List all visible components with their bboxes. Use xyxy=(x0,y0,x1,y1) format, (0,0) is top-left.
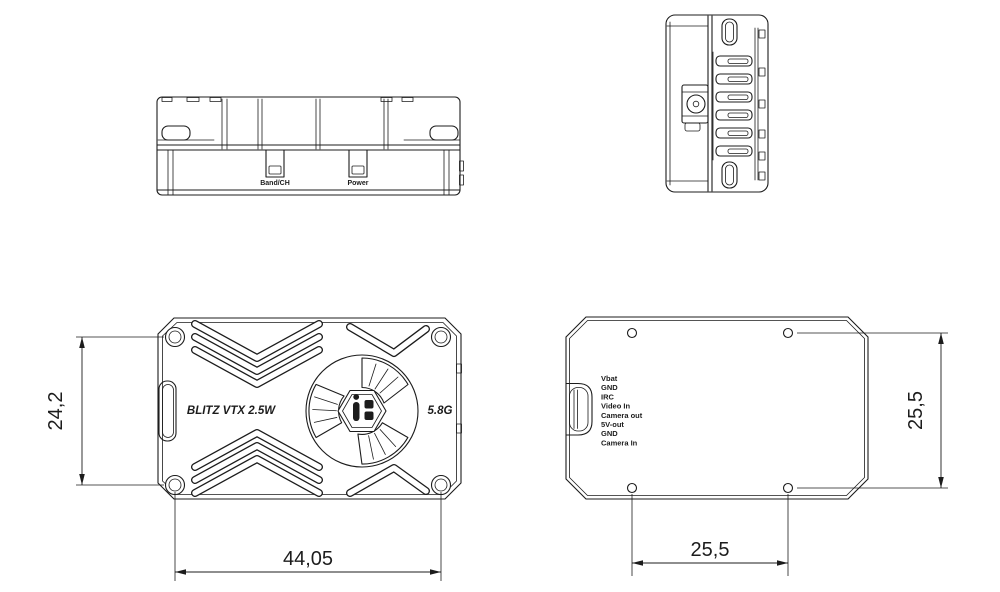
top-left-tab xyxy=(159,381,176,441)
iflight-logo-icon xyxy=(338,391,386,432)
pin-label: GND xyxy=(601,383,618,392)
pin-label: IRC xyxy=(601,392,615,401)
drawing-canvas: Band/CH Power xyxy=(0,0,1000,592)
ufl-connector-icon xyxy=(682,85,708,131)
side-right-notches xyxy=(759,30,765,180)
band-frequency-label: 5.8G xyxy=(428,405,453,417)
dimension-hole-spacing-horizontal: 25,5 xyxy=(632,494,788,576)
pin-label: 5V-out xyxy=(601,420,624,429)
front-split-lines xyxy=(157,145,460,190)
power-button xyxy=(349,150,367,177)
front-mount-tabs xyxy=(158,126,460,140)
pin-label: Camera out xyxy=(601,411,643,420)
dimension-width-value: 44,05 xyxy=(283,548,333,570)
side-view xyxy=(666,15,768,192)
front-top-notches xyxy=(162,98,413,102)
product-label: BLITZ VTX 2.5W xyxy=(187,405,276,417)
band-ch-button xyxy=(266,150,284,177)
pinout-labels: Vbat GND IRC Video In Camera out 5V-out … xyxy=(601,374,643,447)
technical-drawing: Band/CH Power xyxy=(0,0,1000,592)
pin-label: Video In xyxy=(601,402,630,411)
side-fin-slots xyxy=(713,52,752,160)
front-fin-lines xyxy=(222,99,388,149)
pin-label: Vbat xyxy=(601,374,618,383)
dimension-height-value: 24,2 xyxy=(45,392,67,431)
dimension-hole-horizontal-value: 25,5 xyxy=(691,539,730,561)
top-view: BLITZ VTX 2.5W 5.8G xyxy=(158,318,462,499)
dimension-body-height: 24,2 xyxy=(45,337,164,485)
front-outline xyxy=(157,97,460,195)
front-view: Band/CH Power xyxy=(157,97,464,195)
bottom-view: Vbat GND IRC Video In Camera out 5V-out … xyxy=(566,317,868,499)
dimension-hole-vertical-value: 25,5 xyxy=(905,391,927,430)
side-mid-lines xyxy=(708,16,712,191)
side-end-slots xyxy=(722,19,737,188)
dimension-hole-spacing-vertical: 25,5 xyxy=(797,333,948,488)
front-corner-posts xyxy=(168,150,449,195)
power-label: Power xyxy=(347,180,368,187)
dimension-body-width: 44,05 xyxy=(175,492,441,581)
pin-label: Camera In xyxy=(601,438,638,447)
band-ch-label: Band/CH xyxy=(260,180,290,187)
side-outline xyxy=(666,15,768,192)
side-right-lines xyxy=(755,28,758,180)
pin-label: GND xyxy=(601,429,618,438)
bottom-mounting-holes xyxy=(628,329,793,493)
